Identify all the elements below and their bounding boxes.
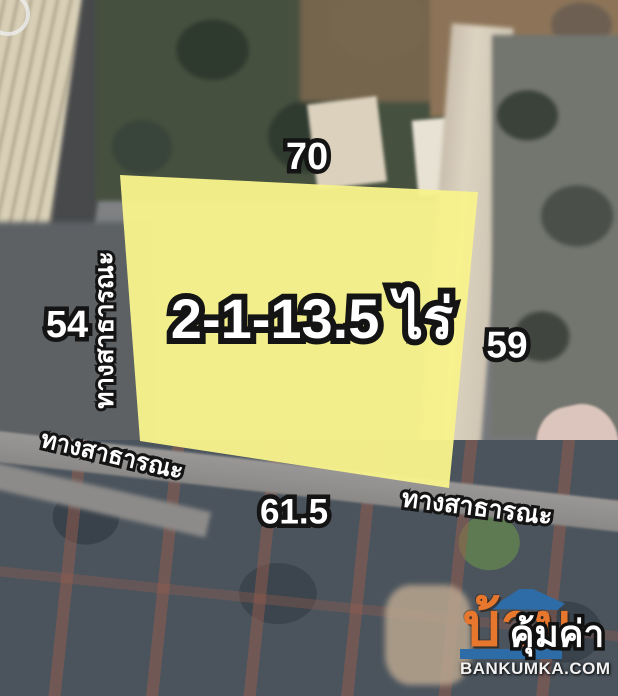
tree-shadow-right xyxy=(492,35,618,437)
dimension-left-text: 54 xyxy=(46,304,88,346)
dimension-bottom-text: 61.5 xyxy=(260,493,328,532)
brand-overlay-label: คุ้มค่า คุ้มค่า xyxy=(510,616,605,653)
watermark-logo: บ้าน คุ้มค่า คุ้มค่า BANKUMKA.COM xyxy=(455,588,618,680)
dimension-label-bottom: 61.5 61.5 xyxy=(260,495,328,530)
plot-area-text: 2-1-13.5 ไร่ xyxy=(171,287,453,350)
listing-map-image: { "map": { "plot": { "area_label": "2-1-… xyxy=(0,0,618,680)
dimension-right-text: 59 xyxy=(486,325,527,366)
dimension-label-right: 59 59 xyxy=(486,327,527,364)
road-label-left-vertical: ทางสาธารณะ ทางสาธารณะ xyxy=(91,251,117,408)
plot-area-label: 2-1-13.5 ไร่ 2-1-13.5 ไร่ xyxy=(171,291,453,347)
dimension-label-top: 70 70 xyxy=(286,138,328,176)
dimension-label-left: 54 54 xyxy=(46,306,88,344)
watermark-website: BANKUMKA.COM xyxy=(460,659,610,679)
brand-overlay-text: คุ้มค่า xyxy=(510,614,605,655)
road-left-text: ทางสาธารณะ xyxy=(89,251,119,408)
dimension-top-text: 70 xyxy=(286,136,328,178)
